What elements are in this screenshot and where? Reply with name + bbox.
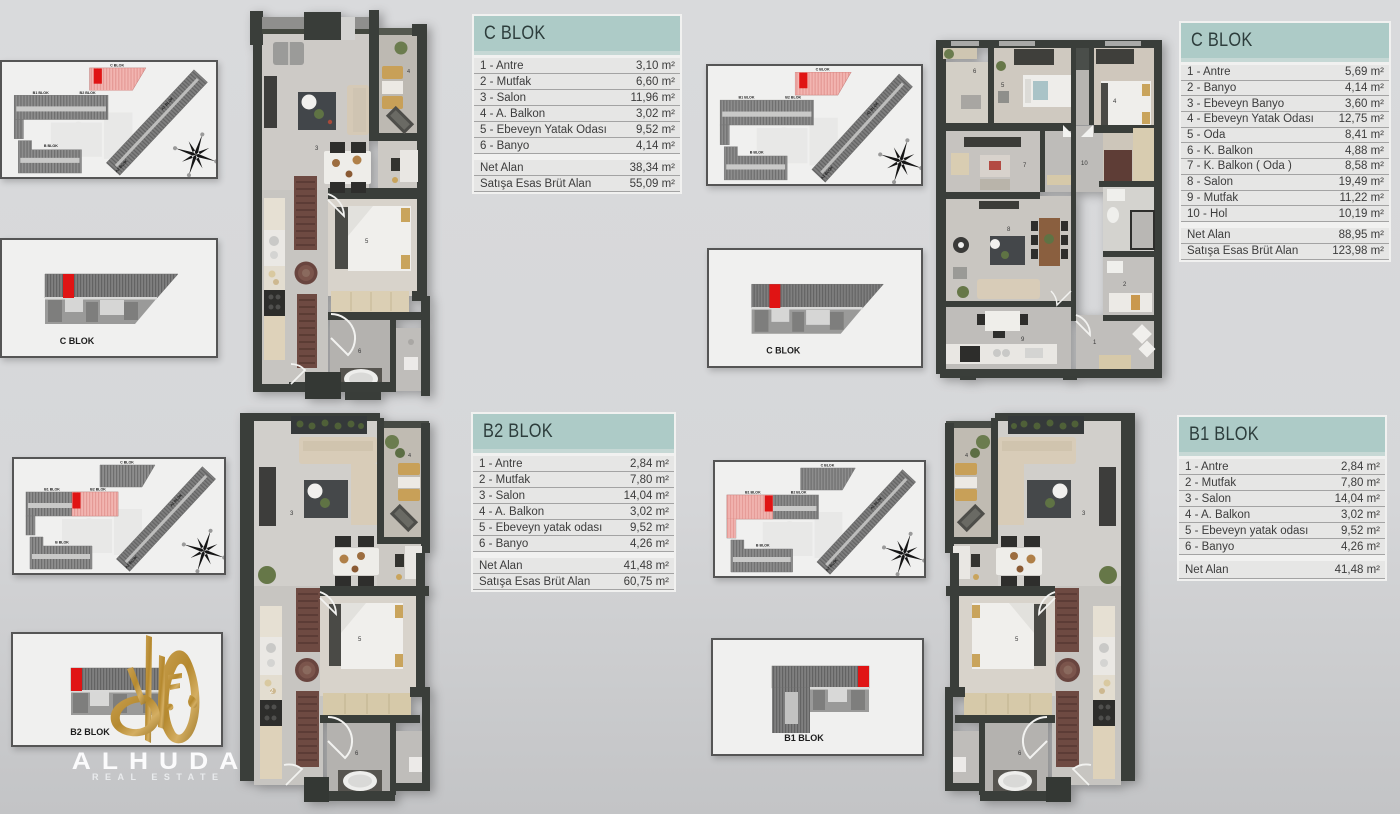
svg-text:10: 10 <box>1081 161 1088 167</box>
svg-text:4: 4 <box>407 69 410 75</box>
svg-text:C BLOK: C BLOK <box>60 336 95 346</box>
svg-text:4: 4 <box>965 453 968 459</box>
svg-text:4: 4 <box>408 453 411 459</box>
svg-text:B1 BLOK: B1 BLOK <box>784 733 824 743</box>
svg-text:C BLOK: C BLOK <box>766 346 801 356</box>
